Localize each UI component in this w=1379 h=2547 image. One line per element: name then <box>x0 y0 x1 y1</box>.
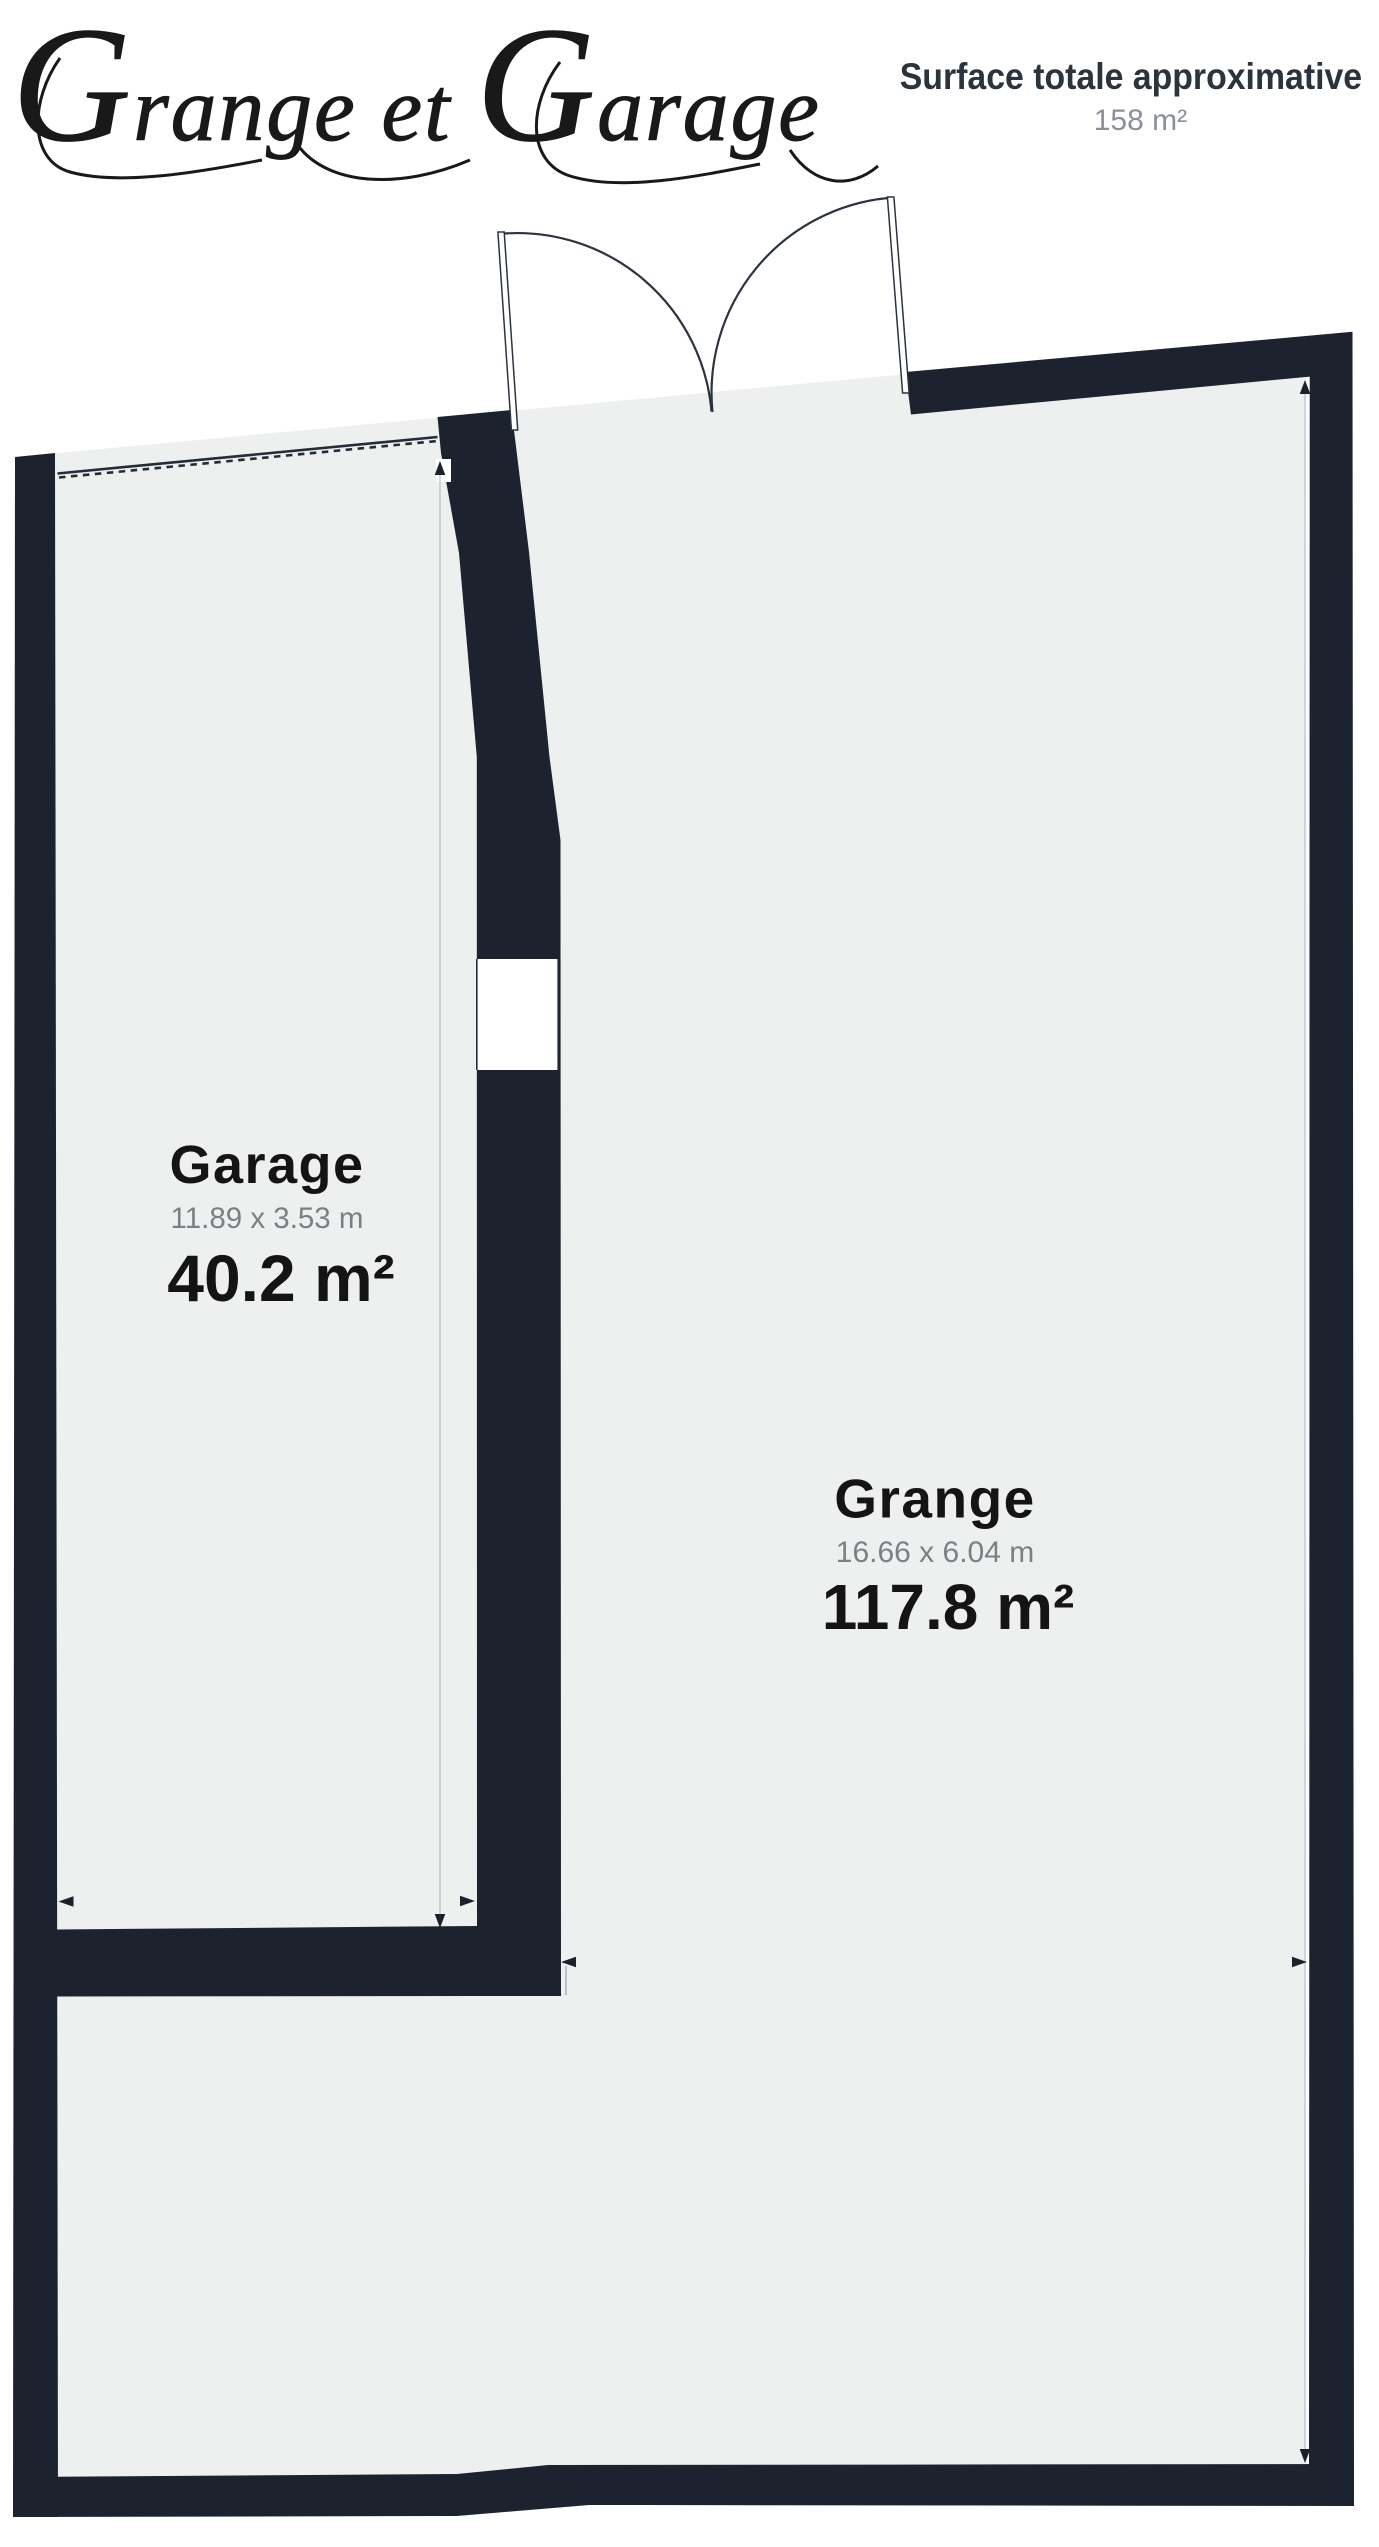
svg-text:16.66 x 6.04 m: 16.66 x 6.04 m <box>836 1536 1034 1569</box>
svg-text:40.2 m²: 40.2 m² <box>167 1241 394 1315</box>
svg-text:Grange et Garage: Grange et Garage <box>12 0 821 176</box>
svg-text:11.89 x 3.53 m: 11.89 x 3.53 m <box>171 1202 364 1235</box>
svg-text:Garage: Garage <box>169 1135 364 1195</box>
svg-text:117.8 m²: 117.8 m² <box>822 1571 1075 1643</box>
svg-text:Grange: Grange <box>834 1468 1036 1530</box>
